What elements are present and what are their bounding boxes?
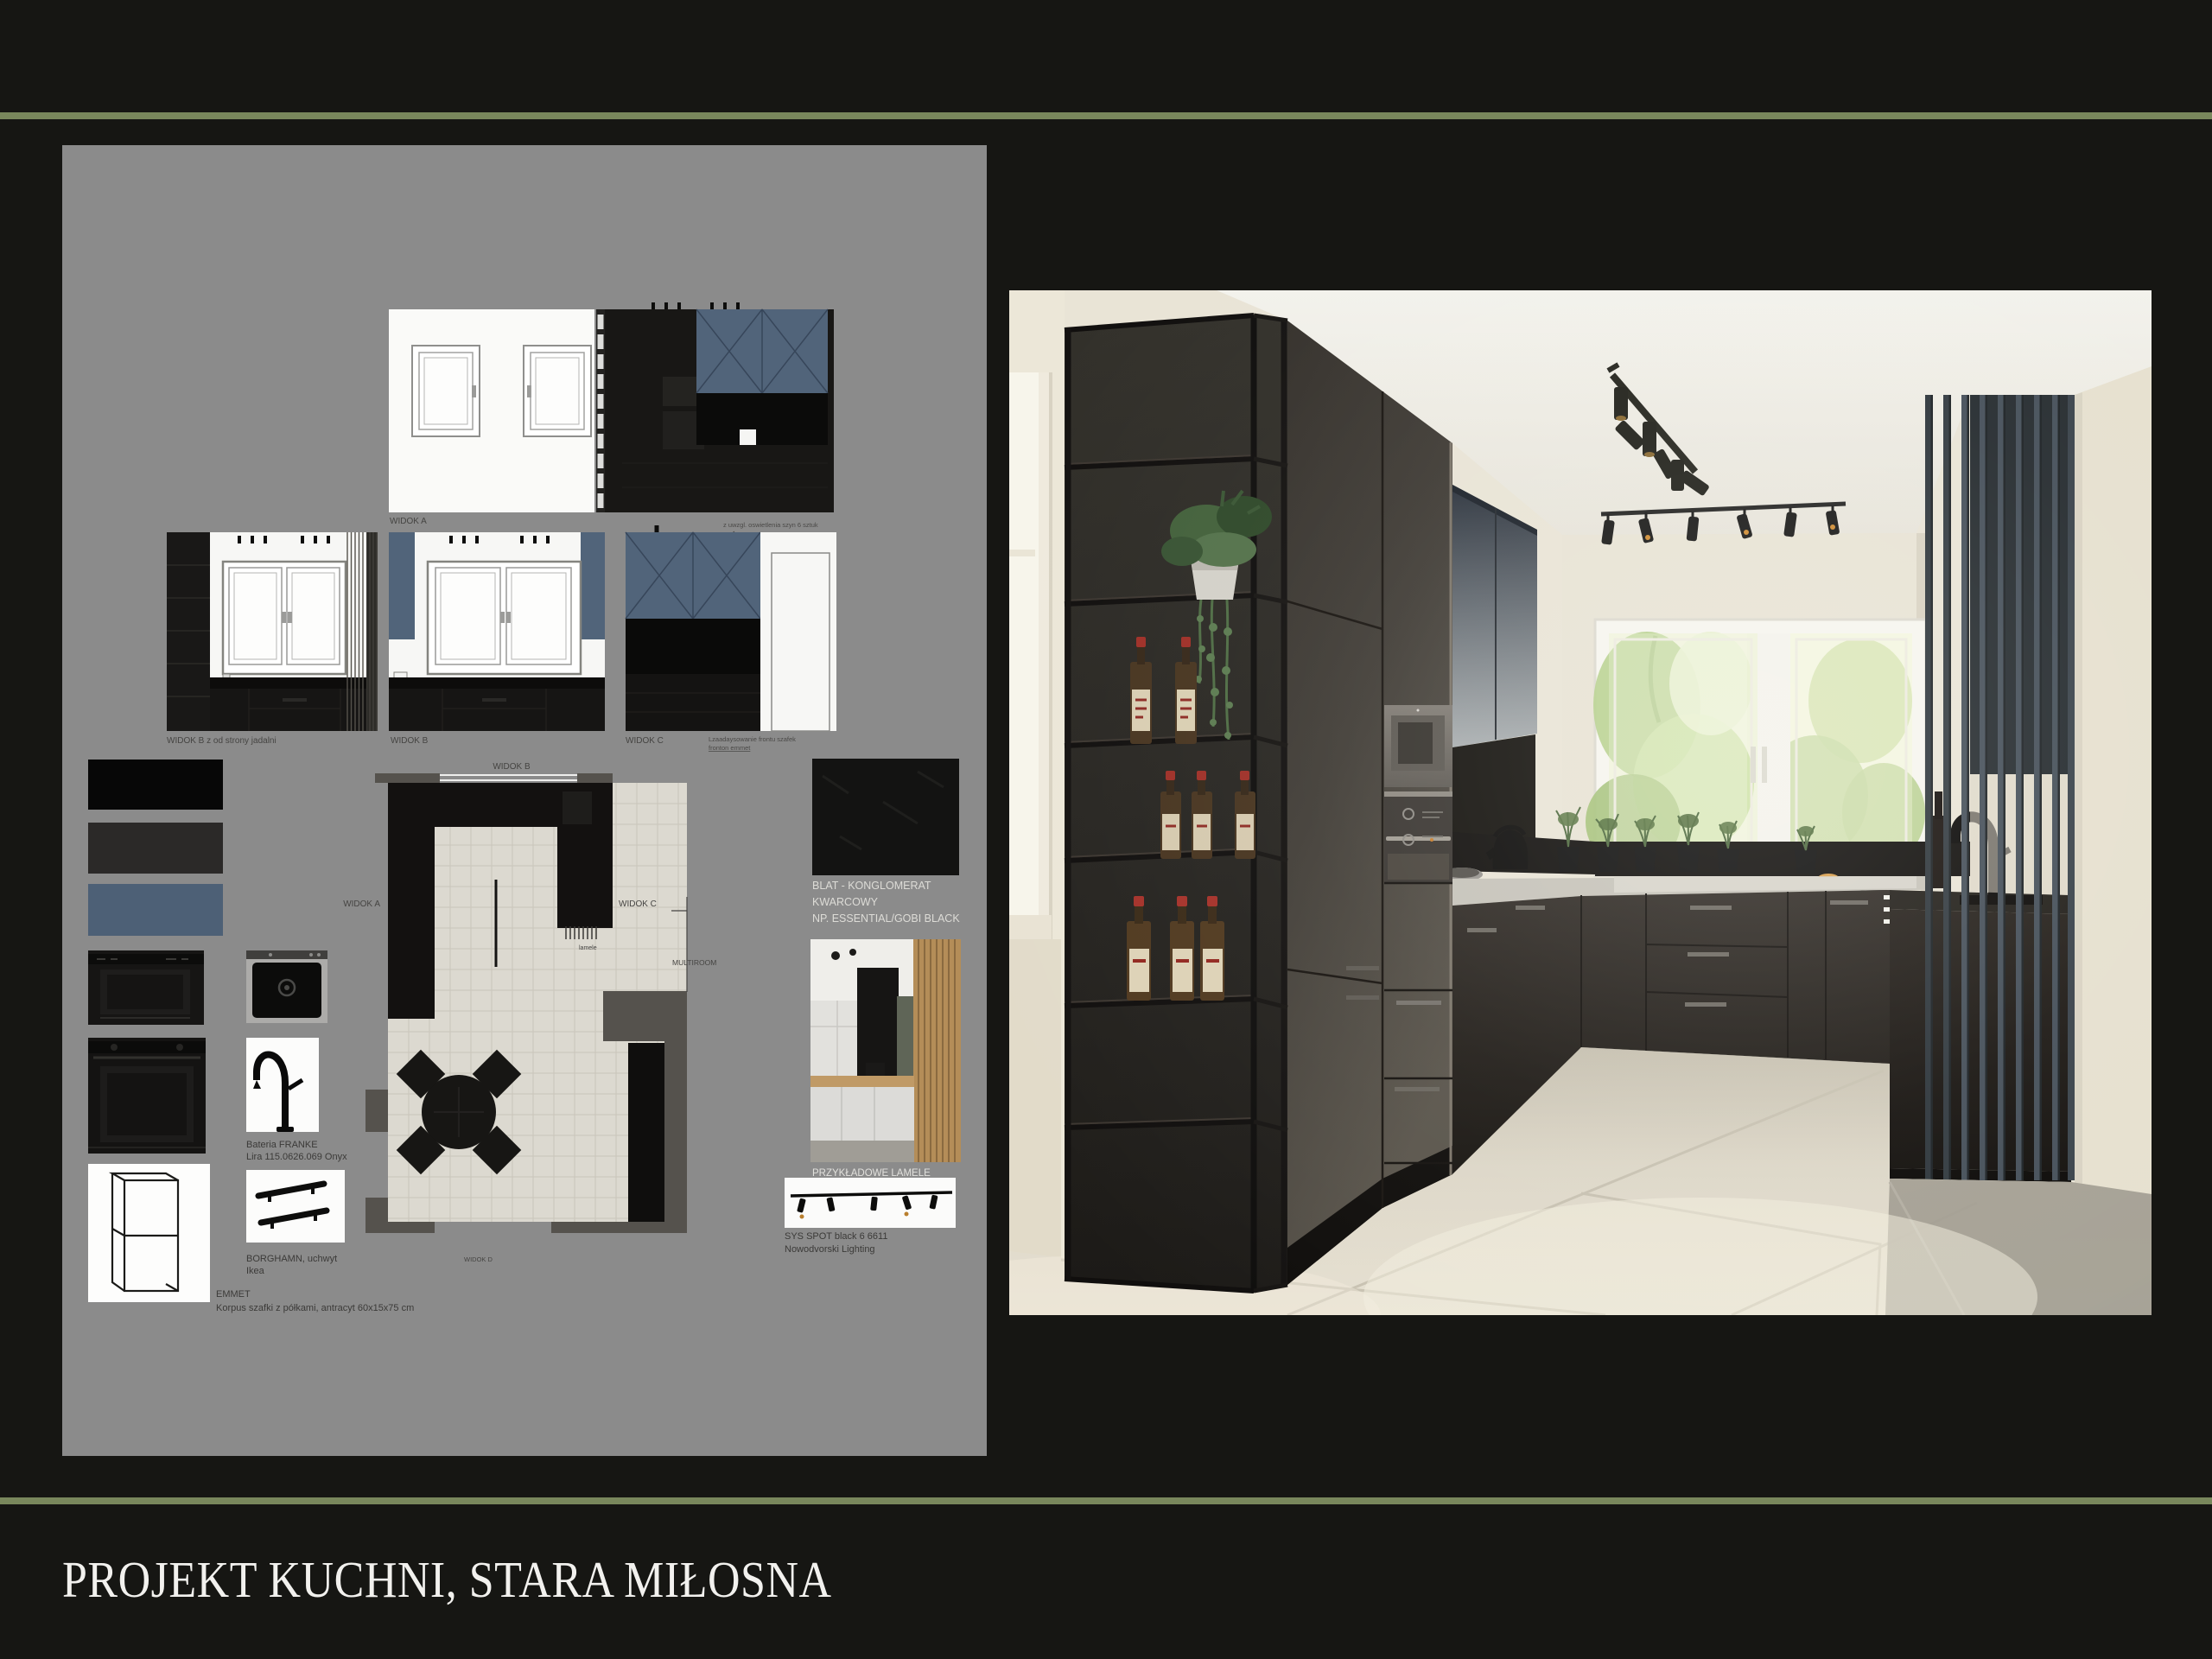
svg-text:BORGHAMN, uchwyt: BORGHAMN, uchwyt xyxy=(246,1254,337,1264)
svg-text:fronton emmet: fronton emmet xyxy=(709,744,751,752)
svg-text:Lira 115.0626.069 Onyx: Lira 115.0626.069 Onyx xyxy=(246,1152,347,1162)
svg-text:MULTIROOM: MULTIROOM xyxy=(672,958,716,967)
svg-text:PRZYKŁADOWE LAMELE: PRZYKŁADOWE LAMELE xyxy=(812,1168,931,1179)
svg-text:WIDOK D: WIDOK D xyxy=(464,1255,493,1263)
svg-text:SYS SPOT black 6 6611: SYS SPOT black 6 6611 xyxy=(785,1231,887,1242)
svg-text:WIDOK B: WIDOK B xyxy=(493,762,531,772)
svg-text:z uwzgl. oswietlenia szyn 6 sz: z uwzgl. oswietlenia szyn 6 sztuk xyxy=(723,521,818,529)
svg-text:WIDOK A: WIDOK A xyxy=(390,517,427,526)
svg-text:lamele: lamele xyxy=(579,945,597,951)
svg-text:Bateria FRANKE: Bateria FRANKE xyxy=(246,1140,318,1150)
svg-text:Ikea: Ikea xyxy=(246,1266,265,1276)
svg-text:WIDOK C: WIDOK C xyxy=(619,899,657,909)
svg-text:KWARCOWY: KWARCOWY xyxy=(812,896,879,908)
svg-text:NP. ESSENTIAL/GOBI BLACK: NP. ESSENTIAL/GOBI BLACK xyxy=(812,912,960,925)
svg-text:EMMET: EMMET xyxy=(216,1289,251,1300)
svg-text:WIDOK A: WIDOK A xyxy=(343,899,380,909)
svg-text:WIDOK B: WIDOK B xyxy=(391,736,429,746)
svg-text:Nowodvorski Lighting: Nowodvorski Lighting xyxy=(785,1244,875,1255)
svg-text:Korpus szafki z półkami, antra: Korpus szafki z półkami, antracyt 60x15x… xyxy=(216,1303,414,1313)
svg-text:WIDOK B z od strony jadalni: WIDOK B z od strony jadalni xyxy=(167,736,276,746)
svg-text:Lzaadaysowanie frontu szafek: Lzaadaysowanie frontu szafek xyxy=(709,735,796,743)
svg-text:BLAT - KONGLOMERAT: BLAT - KONGLOMERAT xyxy=(812,880,931,892)
svg-text:WIDOK C: WIDOK C xyxy=(626,736,664,746)
